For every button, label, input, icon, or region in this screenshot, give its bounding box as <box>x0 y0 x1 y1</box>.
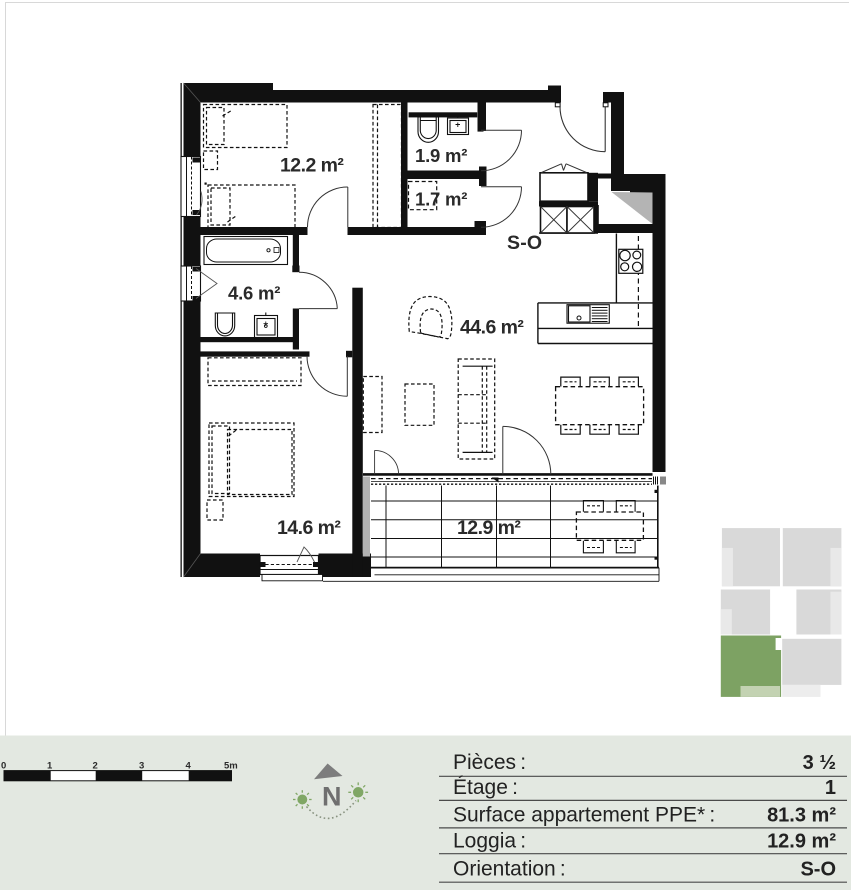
svg-text:2: 2 <box>93 761 98 772</box>
svg-text:5m: 5m <box>224 761 238 772</box>
svg-text:Orientation :: Orientation : <box>453 858 566 881</box>
svg-text:4.6 m²: 4.6 m² <box>228 283 280 304</box>
svg-text:N: N <box>322 782 342 812</box>
svg-text:Pièces :: Pièces : <box>453 751 526 774</box>
svg-text:12.9 m²: 12.9 m² <box>767 831 836 853</box>
svg-text:14.6 m²: 14.6 m² <box>277 517 341 539</box>
svg-text:81.3 m²: 81.3 m² <box>767 805 836 827</box>
svg-text:1.9 m²: 1.9 m² <box>415 145 467 166</box>
svg-text:12.9 m²: 12.9 m² <box>457 517 521 539</box>
svg-text:Surface appartement PPE* :: Surface appartement PPE* : <box>453 804 715 827</box>
svg-text:3: 3 <box>139 761 144 772</box>
svg-text:Loggia :: Loggia : <box>453 830 526 853</box>
svg-text:1.7 m²: 1.7 m² <box>415 189 467 210</box>
svg-text:1: 1 <box>47 761 53 772</box>
svg-text:12.2 m²: 12.2 m² <box>280 155 344 177</box>
svg-text:1: 1 <box>825 777 836 799</box>
svg-text:3 ½: 3 ½ <box>803 752 836 774</box>
svg-text:Étage :: Étage : <box>453 776 518 799</box>
svg-text:0: 0 <box>1 761 6 772</box>
svg-text:S-O: S-O <box>800 859 836 881</box>
svg-text:4: 4 <box>186 761 192 772</box>
svg-text:44.6 m²: 44.6 m² <box>460 317 524 339</box>
svg-text:S-O: S-O <box>507 232 542 254</box>
